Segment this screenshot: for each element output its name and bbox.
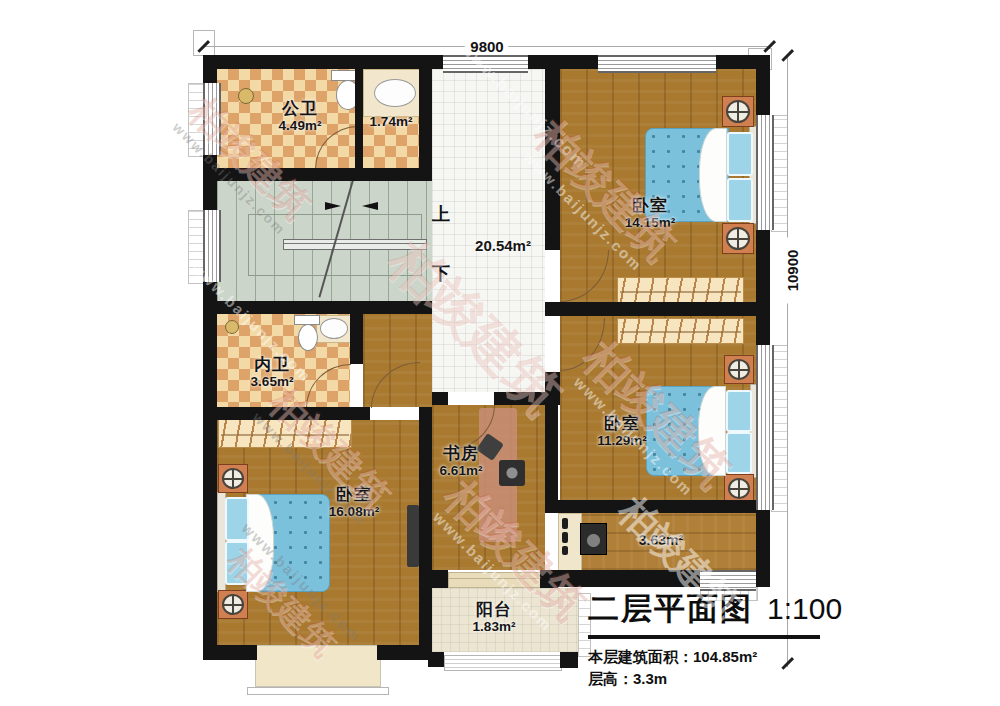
- bed-blanket: [699, 128, 727, 222]
- room-name: 阳台: [473, 600, 516, 619]
- storage-item: [562, 518, 568, 529]
- nightstand: [218, 590, 248, 619]
- wall: [545, 302, 770, 316]
- room-name: 内卫: [251, 355, 294, 374]
- dimension-line-right: [787, 55, 788, 667]
- room-area: 16.08m²: [329, 504, 379, 519]
- building-area-label: 本层建筑面积：104.85m²: [588, 646, 842, 668]
- title-underline: [588, 635, 820, 639]
- dimension-right-label: 10900: [784, 238, 801, 304]
- wall: [203, 301, 432, 314]
- wall: [558, 500, 756, 513]
- window: [756, 345, 774, 510]
- lamp-icon: [728, 359, 750, 380]
- room-area: 11.29m²: [597, 433, 647, 448]
- room-name: 公卫: [279, 99, 322, 118]
- stair-break-arrow: [325, 202, 341, 210]
- shower-head-icon: [238, 88, 254, 104]
- wall: [545, 372, 560, 405]
- floor-height-label: 层高：3.3m: [588, 668, 842, 690]
- room-label-corridor: 20.54m²: [475, 238, 531, 255]
- wall: [419, 407, 432, 645]
- wardrobe: [218, 419, 352, 448]
- floor-corridor: [432, 69, 545, 392]
- room-label-study: 书房 6.61m²: [440, 444, 483, 478]
- nightstand: [724, 355, 754, 384]
- room-label-hallway: 3.63m²: [639, 533, 683, 549]
- room-area: 6.61m²: [440, 463, 483, 478]
- room-area: 4.49m²: [279, 118, 322, 133]
- lamp-icon: [222, 468, 244, 489]
- floorplan-canvas: 公卫 4.49m² 1.74m² 上 20.54m² 下 卧室 14.15m² …: [0, 0, 1000, 706]
- toilet-icon: [298, 324, 318, 351]
- storage-item: [562, 546, 568, 555]
- sink-icon: [374, 79, 416, 107]
- window: [598, 55, 716, 73]
- tv-icon: [407, 505, 419, 567]
- wall: [545, 405, 558, 513]
- sink-icon: [320, 318, 348, 339]
- wall: [419, 69, 432, 168]
- lamp-icon: [728, 478, 750, 499]
- wall: [203, 168, 432, 181]
- pillow: [726, 390, 752, 432]
- bed-blanket: [698, 386, 726, 476]
- pillow: [727, 178, 753, 222]
- computer-desk-icon: [499, 460, 525, 486]
- room-label-public-bath: 公卫 4.49m²: [279, 99, 322, 133]
- wall: [350, 314, 363, 364]
- balcony-column: [560, 652, 578, 668]
- window: [203, 210, 221, 282]
- wall: [432, 570, 448, 588]
- room-area: 3.63m²: [639, 533, 683, 549]
- room-name: 卧室: [625, 196, 675, 215]
- wardrobe: [617, 277, 744, 304]
- bay-window-frame: [247, 687, 389, 695]
- pillow: [726, 432, 752, 474]
- room-label-balcony: 阳台 1.83m²: [473, 600, 516, 634]
- lamp-icon: [726, 227, 750, 250]
- window: [203, 83, 221, 155]
- nightstand: [724, 474, 754, 503]
- title-block: 二层平面图 1:100 本层建筑面积：104.85m² 层高：3.3m: [588, 588, 842, 690]
- plan-title: 二层平面图: [588, 588, 753, 630]
- storage-item: [562, 532, 568, 543]
- room-label-bedroom-top-right: 卧室 14.15m²: [625, 196, 675, 230]
- stair-handrail: [283, 239, 427, 250]
- washing-machine-icon: [580, 523, 607, 555]
- pillow: [225, 541, 249, 585]
- pillow: [727, 132, 753, 176]
- window: [756, 115, 774, 230]
- window: [443, 55, 528, 73]
- room-area: 20.54m²: [475, 238, 531, 255]
- room-label-bedroom-left: 卧室 16.08m²: [329, 485, 379, 519]
- wall: [432, 392, 448, 405]
- stair-down-label: 下: [432, 261, 450, 285]
- room-area: 1.74m²: [370, 114, 413, 129]
- room-label-washroom: 1.74m²: [370, 114, 413, 129]
- balcony-door-sill: [448, 572, 542, 588]
- room-name: 书房: [440, 444, 483, 463]
- room-label-ensuite-bath: 内卫 3.65m²: [251, 355, 294, 389]
- bay-window: [255, 645, 381, 687]
- wall: [545, 69, 560, 250]
- wall: [355, 69, 363, 168]
- nightstand: [218, 464, 248, 493]
- pillow: [225, 497, 249, 541]
- lamp-icon: [726, 100, 750, 123]
- plan-scale: 1:100: [767, 592, 842, 626]
- balcony-railing: [444, 655, 562, 671]
- wall: [203, 645, 257, 660]
- lamp-icon: [222, 594, 244, 615]
- room-name: 卧室: [597, 414, 647, 433]
- wardrobe: [617, 318, 744, 344]
- room-label-bedroom-right: 卧室 11.29m²: [597, 414, 647, 448]
- nightstand: [722, 223, 754, 254]
- stair-break-arrow: [362, 202, 378, 210]
- wall: [540, 570, 558, 588]
- room-area: 14.15m²: [625, 215, 675, 230]
- room-area: 1.83m²: [473, 619, 516, 634]
- wall: [377, 645, 432, 660]
- nightstand: [722, 96, 754, 127]
- stair-up-label: 上: [432, 202, 450, 226]
- shower-head-icon: [225, 320, 239, 334]
- wall: [203, 407, 370, 420]
- dimension-top-label: 9800: [465, 38, 508, 55]
- room-area: 3.65m²: [251, 374, 294, 389]
- room-name: 卧室: [329, 485, 379, 504]
- balcony-column: [428, 652, 444, 667]
